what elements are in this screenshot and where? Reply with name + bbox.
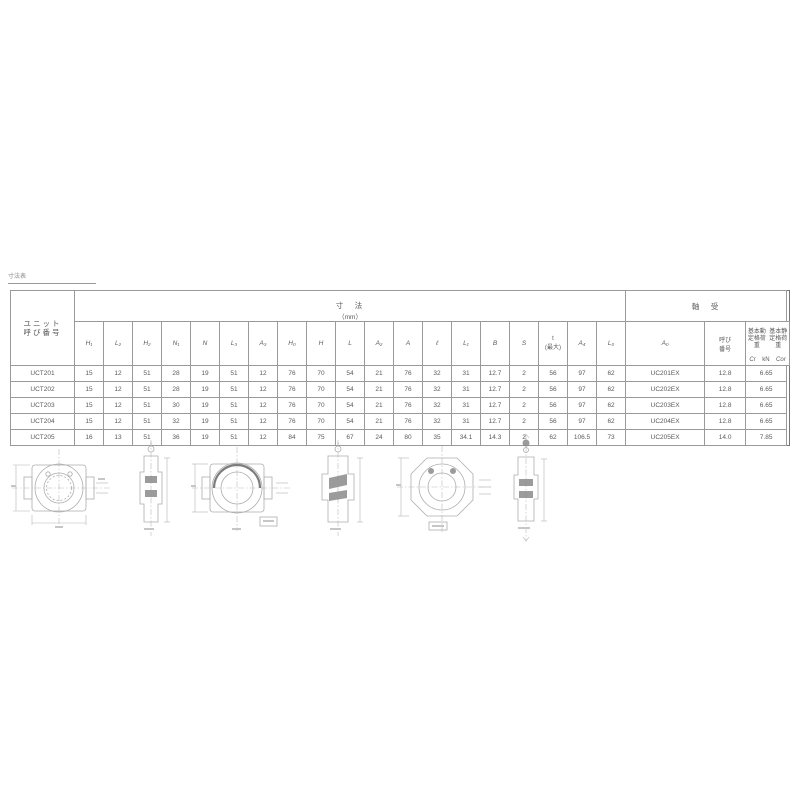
dim-symbol-header: N: [191, 322, 220, 366]
cr-cell: 12.8: [705, 414, 746, 430]
dim-symbol-header: ℓ: [423, 322, 452, 366]
dimension-cell: 54: [336, 366, 365, 382]
dimension-cell: 106.5: [568, 430, 597, 446]
dimension-cell: 30: [162, 398, 191, 414]
dimension-cell: 70: [307, 414, 336, 430]
cor-cell: 6.65: [746, 414, 787, 430]
dimension-cell: 97: [568, 382, 597, 398]
dimension-cell: 54: [336, 414, 365, 430]
bearing-number-cell: UC204EX: [626, 414, 705, 430]
dimension-cell: 32: [423, 382, 452, 398]
dim-symbol-header: N₁: [162, 322, 191, 366]
dim-symbol-header: A₄: [568, 322, 597, 366]
dimension-cell: 32: [423, 414, 452, 430]
dimension-cell: 51: [133, 414, 162, 430]
dimension-cell: 51: [220, 382, 249, 398]
dimension-cell: 12.7: [481, 414, 510, 430]
dim-symbol-header: H₂: [133, 322, 162, 366]
unit-number-cell: UCT205: [11, 430, 75, 446]
dimension-cell: 32: [162, 414, 191, 430]
dimension-cell: 76: [278, 414, 307, 430]
cor-cell: 7.85: [746, 430, 787, 446]
unit-number-cell: UCT203: [11, 398, 75, 414]
table-row: UCT204151251321951127670542176323112.725…: [11, 414, 790, 430]
table-note: 寸法表: [8, 274, 96, 284]
dimension-cell: 32: [423, 366, 452, 382]
dim-symbol-header: S: [510, 322, 539, 366]
dimension-cell: 97: [568, 398, 597, 414]
dimensions-group-header: 寸 法 （mm）: [75, 291, 626, 322]
dimension-cell: 12: [249, 414, 278, 430]
table-row: UCT202151251281951127670542176323112.725…: [11, 382, 790, 398]
cr-cell: 12.8: [705, 382, 746, 398]
drawing-takeup-front-1: [10, 445, 114, 533]
dimension-cell: 56: [539, 414, 568, 430]
dim-symbol-header: H: [307, 322, 336, 366]
cor-cell: 6.65: [746, 382, 787, 398]
dimension-cell: 21: [365, 414, 394, 430]
dim-symbol-header: H₀: [278, 322, 307, 366]
load-ratings-header: 基本動 定格荷重 基本静 定格荷重 Cr kN Cor: [746, 322, 790, 366]
dimension-cell: 76: [394, 382, 423, 398]
dimension-cell: 19: [191, 414, 220, 430]
dimension-cell: 56: [539, 366, 568, 382]
dimension-cell: 51: [133, 382, 162, 398]
dimension-cell: 76: [278, 382, 307, 398]
dim-symbol-header: L₁: [452, 322, 481, 366]
dimension-cell: 62: [597, 414, 626, 430]
dimension-cell: 12.7: [481, 398, 510, 414]
dimension-cell: 76: [394, 414, 423, 430]
bearing-number-cell: UC203EX: [626, 398, 705, 414]
dimension-cell: 51: [220, 414, 249, 430]
dimension-cell: 62: [597, 382, 626, 398]
dimension-cell: 76: [394, 366, 423, 382]
dimension-cell: 2: [510, 366, 539, 382]
bearing-group-header: 軸 受: [626, 291, 787, 322]
dimension-cell: 28: [162, 366, 191, 382]
dimension-cell: 51: [220, 366, 249, 382]
dimension-cell: 24: [365, 430, 394, 446]
dimension-cell: 97: [568, 366, 597, 382]
dimension-cell: 31: [452, 366, 481, 382]
header-row-groups: ユニット 呼び番号 寸 法 （mm） 軸 受: [11, 291, 790, 322]
dimension-cell: 15: [75, 366, 104, 382]
dimension-cell: 70: [307, 366, 336, 382]
dimension-cell: 76: [278, 398, 307, 414]
dimension-cell: 70: [307, 382, 336, 398]
bearing-number-header: 呼び 番号: [705, 322, 746, 366]
dimension-cell: 62: [597, 398, 626, 414]
catalog-page: 寸法表 ユニット 呼び番号 寸 法 （mm） 軸 受 H₁L₂H₂N₁NL₃A₃…: [0, 0, 800, 800]
dimensions-label: 寸 法: [336, 301, 365, 310]
unit-number-header: ユニット 呼び番号: [11, 291, 75, 366]
dim-symbol-header: L₃: [220, 322, 249, 366]
dimension-cell: 73: [597, 430, 626, 446]
dimension-cell: 12: [104, 414, 133, 430]
dimension-cell: 12: [249, 366, 278, 382]
static-rating-label: 基本静 定格荷重: [768, 329, 789, 350]
bearing-number-cell: UC202EX: [626, 382, 705, 398]
dim-symbol-header: L₂: [104, 322, 133, 366]
dimension-cell: 21: [365, 398, 394, 414]
dimension-cell: 19: [191, 398, 220, 414]
dim-symbol-header: L₀: [597, 322, 626, 366]
dim-symbol-header: B: [481, 322, 510, 366]
dimension-cell: 51: [220, 398, 249, 414]
dimension-table: ユニット 呼び番号 寸 法 （mm） 軸 受 H₁L₂H₂N₁NL₃A₃H₀HL…: [10, 290, 790, 446]
dimension-cell: 62: [597, 366, 626, 382]
dimension-cell: 32: [423, 398, 452, 414]
dimension-cell: 15: [75, 414, 104, 430]
dimension-cell: 56: [539, 398, 568, 414]
dimension-cell: 13: [104, 430, 133, 446]
table-body: UCT201151251281951127670542176323112.725…: [11, 366, 790, 446]
unit-number-cell: UCT204: [11, 414, 75, 430]
unit-number-cell: UCT202: [11, 382, 75, 398]
drawing-takeup-side-1: [130, 438, 172, 538]
dimension-cell: 76: [394, 398, 423, 414]
dimensions-unit: （mm）: [338, 314, 362, 321]
dimension-cell: 97: [568, 414, 597, 430]
dimension-cell: 12: [249, 398, 278, 414]
dimension-cell: 16: [75, 430, 104, 446]
dimension-cell: 19: [191, 382, 220, 398]
cor-cell: 6.65: [746, 366, 787, 382]
dim-symbol-header: A₀: [626, 322, 705, 366]
dimension-cell: 31: [452, 398, 481, 414]
cr-cell: 12.8: [705, 398, 746, 414]
unit-number-cell: UCT201: [11, 366, 75, 382]
drawing-section-side-2: [502, 433, 552, 543]
dimension-cell: 12: [104, 366, 133, 382]
table-row: UCT203151251301951127670542176323112.725…: [11, 398, 790, 414]
header-row-symbols: H₁L₂H₂N₁NL₃A₃H₀HLA₂AℓL₁BSt (最大)A₄L₀A₀呼び …: [11, 322, 790, 366]
table-row: UCT201151251281951127670542176323112.725…: [11, 366, 790, 382]
cr-cell: 12.8: [705, 366, 746, 382]
dimension-cell: 12: [104, 398, 133, 414]
dimension-cell: 12.7: [481, 366, 510, 382]
dim-symbol-header: A₃: [249, 322, 278, 366]
dimension-cell: 2: [510, 414, 539, 430]
dimension-cell: 56: [539, 382, 568, 398]
dimension-cell: 12.7: [481, 382, 510, 398]
cr-symbol: Cr: [749, 357, 755, 363]
dim-symbol-header: t (最大): [539, 322, 568, 366]
cor-cell: 6.65: [746, 398, 787, 414]
dimension-cell: 76: [278, 366, 307, 382]
dimension-cell: 19: [191, 366, 220, 382]
dimension-cell: 2: [510, 398, 539, 414]
dimension-cell: 31: [452, 382, 481, 398]
bearing-number-cell: UC205EX: [626, 430, 705, 446]
drawing-takeup-front-3: [395, 442, 495, 537]
dimension-cell: 15: [75, 398, 104, 414]
dimension-cell: 12: [104, 382, 133, 398]
dimension-cell: 21: [365, 382, 394, 398]
dimension-cell: 54: [336, 398, 365, 414]
dynamic-rating-label: 基本動 定格荷重: [746, 329, 767, 350]
dimension-cell: 70: [307, 398, 336, 414]
kn-unit: kN: [762, 357, 769, 363]
dimension-cell: 31: [452, 414, 481, 430]
cor-symbol: Cor: [776, 357, 786, 363]
dim-symbol-header: A: [394, 322, 423, 366]
cr-cell: 14.0: [705, 430, 746, 446]
dimension-cell: 51: [133, 398, 162, 414]
dimension-cell: 15: [75, 382, 104, 398]
dimension-cell: 54: [336, 382, 365, 398]
dimension-cell: 51: [133, 366, 162, 382]
dim-symbol-header: A₂: [365, 322, 394, 366]
dimension-cell: 12: [249, 382, 278, 398]
dimension-cell: 28: [162, 382, 191, 398]
dimension-cell: 21: [365, 366, 394, 382]
dim-symbol-header: L: [336, 322, 365, 366]
dim-symbol-header: H₁: [75, 322, 104, 366]
drawing-section-side-1: [312, 438, 366, 538]
bearing-number-cell: UC201EX: [626, 366, 705, 382]
drawing-takeup-front-2: [190, 443, 294, 535]
dimension-cell: 2: [510, 382, 539, 398]
